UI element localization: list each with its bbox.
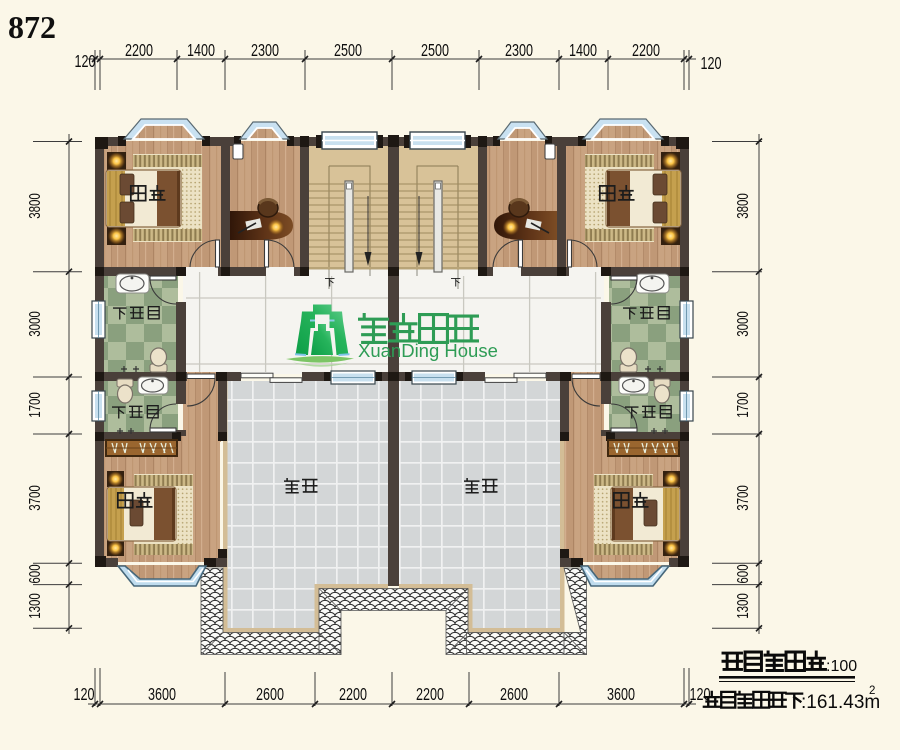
svg-text:2500: 2500 (334, 41, 362, 61)
svg-text:600: 600 (733, 564, 751, 583)
svg-text:120: 120 (74, 52, 95, 72)
svg-text:2: 2 (869, 685, 875, 697)
svg-text::100: :100 (826, 658, 857, 675)
svg-text:1400: 1400 (187, 41, 215, 61)
svg-text:2200: 2200 (416, 685, 444, 705)
svg-text:1400: 1400 (569, 41, 597, 61)
svg-text:2200: 2200 (125, 41, 153, 61)
svg-text:1700: 1700 (25, 392, 43, 418)
svg-text:120: 120 (73, 685, 94, 705)
svg-text:2500: 2500 (421, 41, 449, 61)
svg-text:3000: 3000 (733, 311, 751, 337)
svg-text:600: 600 (25, 564, 43, 583)
svg-text:2600: 2600 (256, 685, 284, 705)
svg-text:2600: 2600 (500, 685, 528, 705)
svg-text:XuanDing House: XuanDing House (358, 340, 498, 361)
svg-text:3700: 3700 (733, 485, 751, 511)
svg-text:1300: 1300 (733, 593, 751, 619)
svg-text:120: 120 (700, 54, 721, 74)
svg-text:3000: 3000 (25, 311, 43, 337)
svg-text:1700: 1700 (733, 392, 751, 418)
svg-text:3600: 3600 (607, 685, 635, 705)
svg-text:3600: 3600 (148, 685, 176, 705)
svg-text:1300: 1300 (25, 593, 43, 619)
svg-text:3700: 3700 (25, 485, 43, 511)
svg-text:872: 872 (8, 9, 56, 45)
svg-text:2200: 2200 (339, 685, 367, 705)
svg-text:2200: 2200 (632, 41, 660, 61)
svg-text:2300: 2300 (505, 41, 533, 61)
svg-text:3800: 3800 (733, 193, 751, 219)
svg-text:2300: 2300 (251, 41, 279, 61)
svg-text:3800: 3800 (25, 193, 43, 219)
